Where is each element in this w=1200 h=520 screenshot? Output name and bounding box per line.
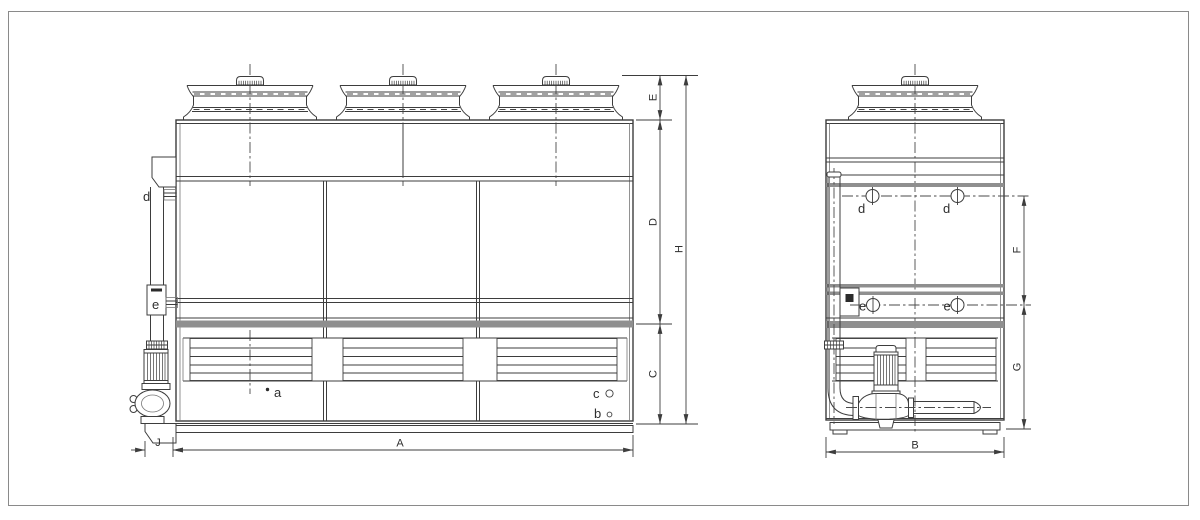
dim-F-label: F [1012, 246, 1024, 253]
dim-E-label: E [648, 94, 660, 101]
inlet-elbow [828, 388, 855, 416]
drawing-sheet: a c b d e [0, 0, 1200, 520]
front-base-channel [176, 426, 633, 433]
basin-rim-band [176, 321, 633, 328]
connection-c-label: c [593, 386, 600, 401]
connection-d2-label: d [943, 201, 950, 216]
bay-dividers [324, 181, 480, 338]
front-pump [130, 341, 170, 424]
louver-panel-3 [497, 339, 617, 381]
connection-b-mark [607, 412, 612, 417]
front-view: a c b d e [130, 64, 698, 457]
front-dimensions-horizontal: J A [131, 435, 633, 457]
connection-e-label: e [152, 297, 159, 312]
dim-G-label: G [1012, 363, 1024, 372]
front-riser-pipe: d e [143, 157, 178, 341]
side-view: d d e e F G B [825, 64, 1032, 458]
connection-d-label: d [143, 189, 150, 204]
connection-e1-label: e [859, 299, 866, 314]
dim-A-label: A [396, 438, 404, 450]
side-louver-panel-2 [926, 339, 996, 381]
dim-J-label: J [155, 437, 161, 449]
dim-D-label: D [648, 218, 660, 226]
dim-C-label: C [648, 370, 660, 378]
front-casing [176, 120, 633, 421]
side-pump-volute [859, 394, 909, 420]
connection-d1-label: d [858, 201, 865, 216]
connection-b-label: b [594, 406, 601, 421]
louver-panel-1 [190, 339, 312, 381]
front-basin [145, 381, 633, 443]
technical-drawing-canvas: a c b d e [0, 0, 1200, 520]
dim-B-label: B [911, 440, 918, 452]
side-basin-rim-band [826, 321, 1004, 328]
connection-c-mark [606, 390, 613, 397]
connection-e2-label: e [944, 299, 951, 314]
connection-a-label: a [274, 385, 282, 400]
pump-volute [135, 390, 170, 417]
dim-H-label: H [674, 245, 686, 253]
connection-a-mark [266, 388, 269, 391]
side-pump [846, 346, 991, 429]
inlet-header [152, 157, 176, 187]
louver-panel-2 [343, 339, 463, 381]
